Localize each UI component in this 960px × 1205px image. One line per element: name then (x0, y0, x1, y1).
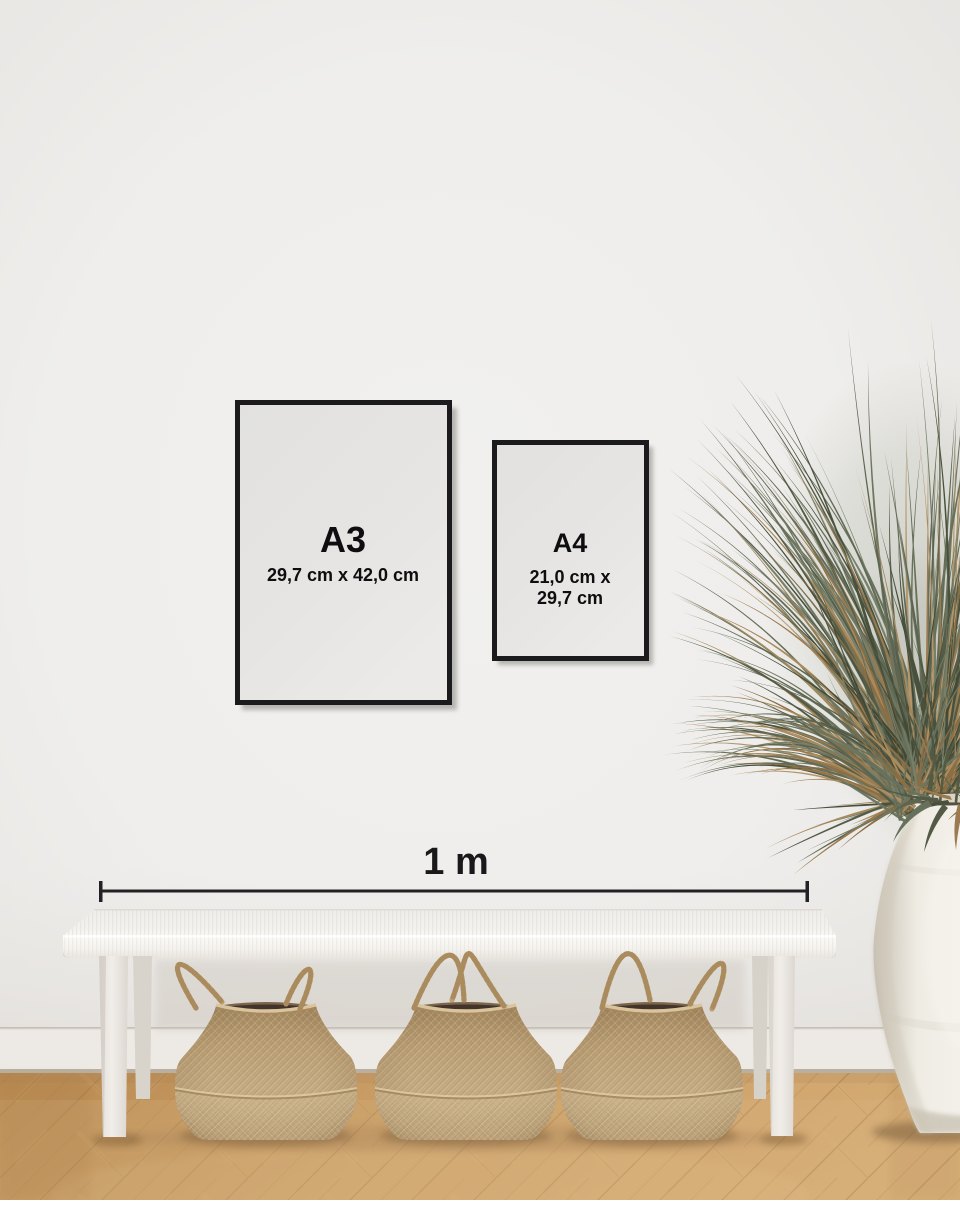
svg-text:29,7 cm x 42,0 cm: 29,7 cm x 42,0 cm (267, 565, 419, 585)
svg-text:A3: A3 (320, 519, 366, 560)
svg-text:21,0 cm x: 21,0 cm x (529, 567, 610, 587)
svg-text:A4: A4 (553, 528, 588, 558)
svg-text:29,7 cm: 29,7 cm (537, 588, 603, 608)
svg-text:1 m: 1 m (423, 841, 488, 883)
